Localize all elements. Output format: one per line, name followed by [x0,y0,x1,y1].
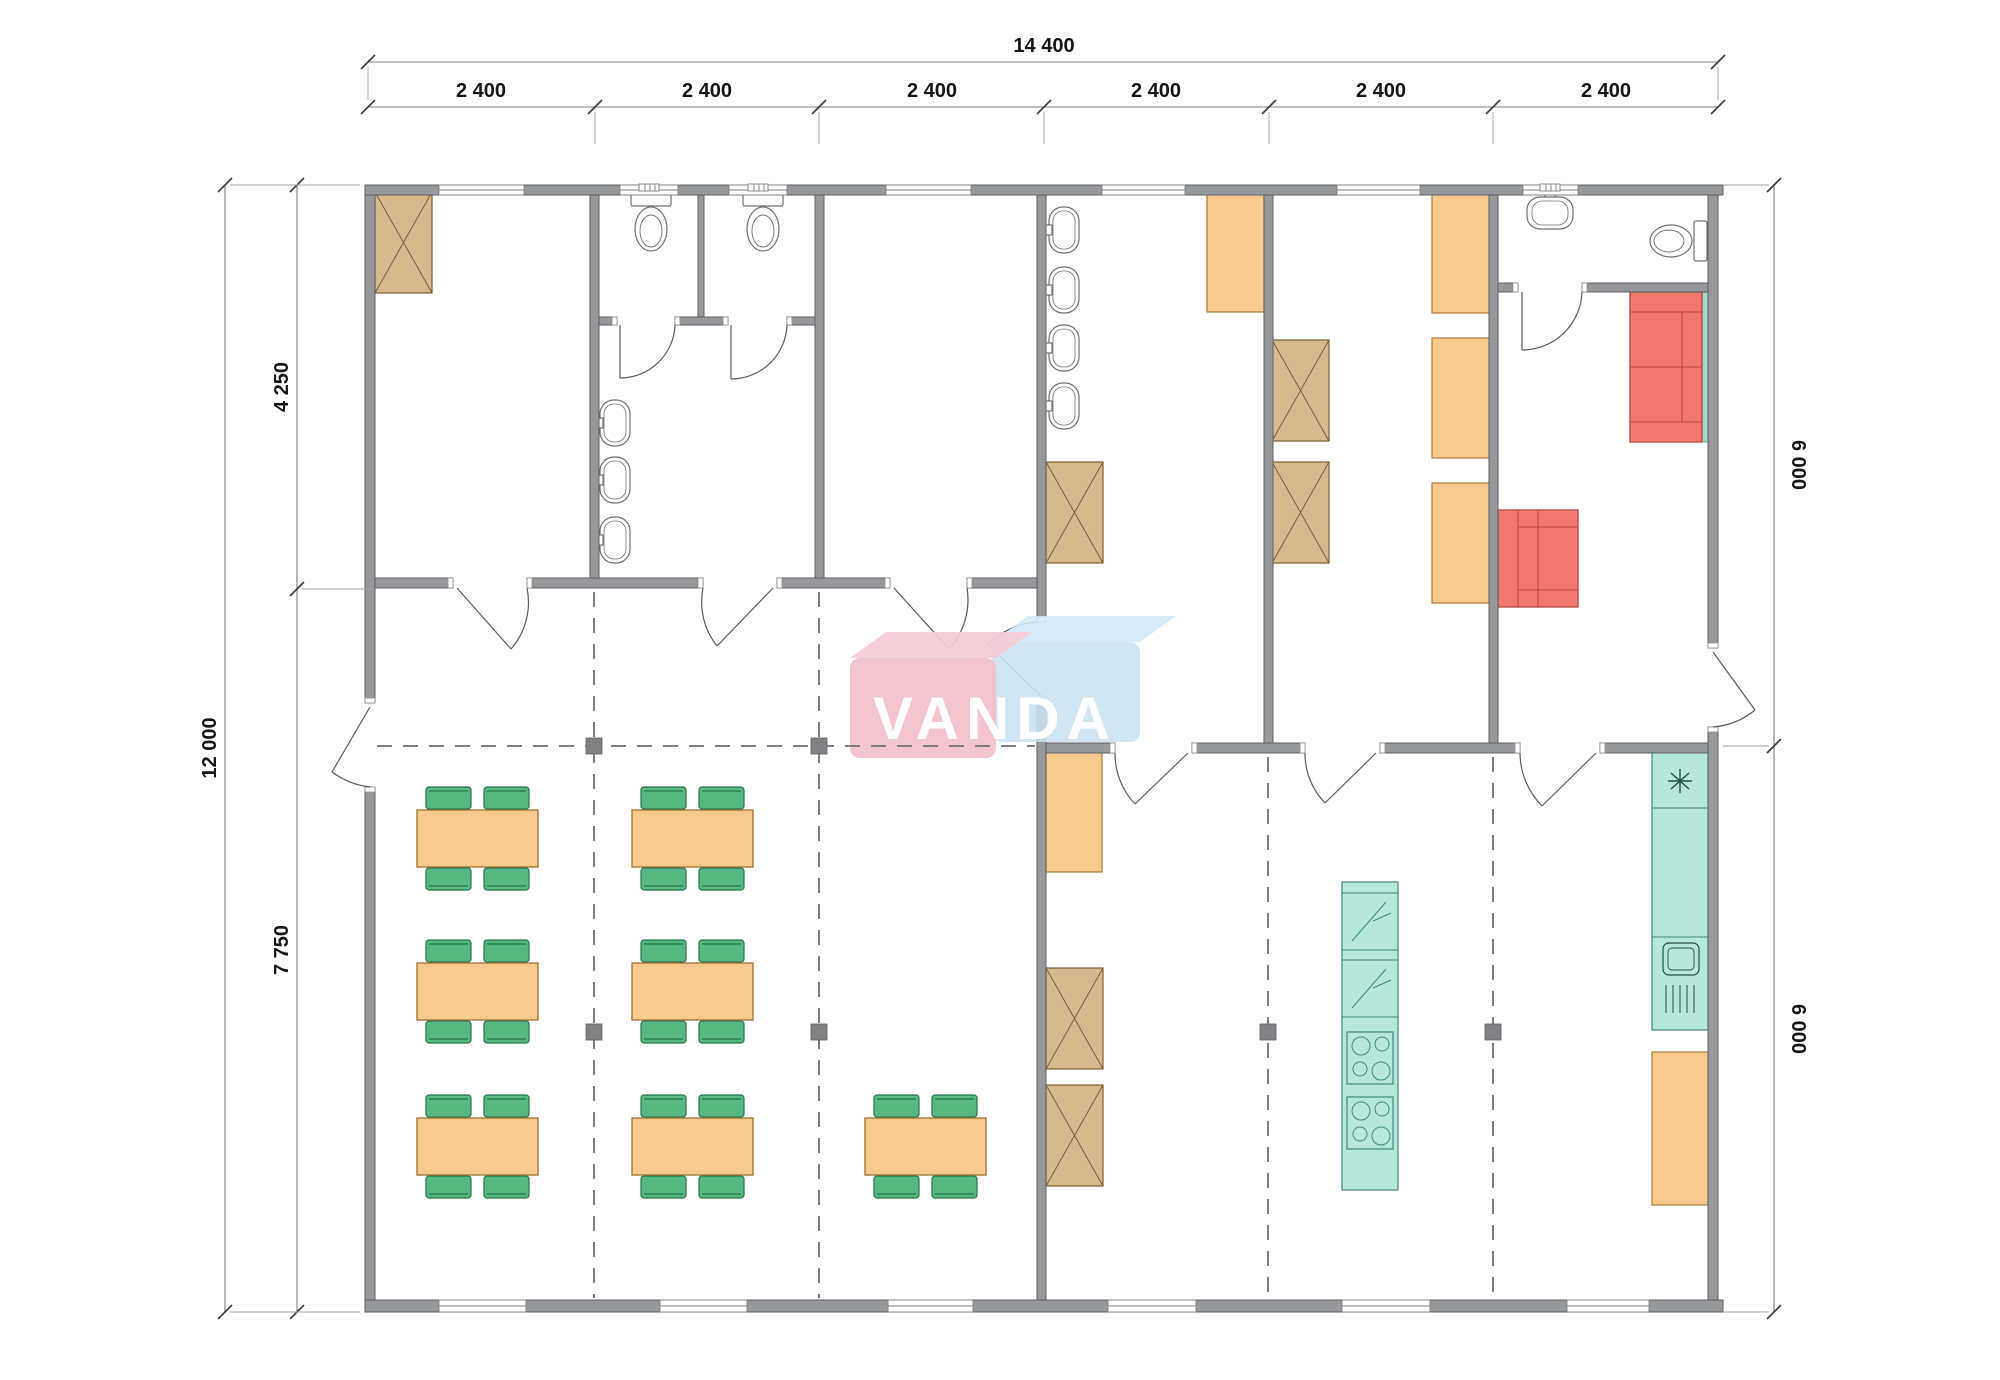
dim-bay: 2 400 [1131,80,1181,102]
bed-icon [1652,1052,1708,1205]
grid-node-icon [586,1024,602,1040]
exterior-wall-left [365,195,375,703]
interior-wall [1489,195,1498,753]
wardrobe-icon [1046,462,1103,563]
dim-left-upper: 4 250 [271,362,293,412]
dim-bay: 2 400 [1356,80,1406,102]
dining-table-icon [865,1095,986,1198]
exterior-door-icon [1713,652,1755,727]
sink-icon [1043,207,1079,253]
dim-total-width: 14 400 [1013,35,1074,57]
grid-node-icon [811,1024,827,1040]
interior-wall [1380,743,1520,753]
bed-icon [1432,483,1490,603]
dining-table-icon [632,940,753,1043]
wardrobe-icon [1272,340,1329,441]
dim-bay: 2 400 [456,80,506,102]
interior-wall [967,578,1037,588]
grid-node-icon [586,738,602,754]
dim-right-upper: 6 000 [1787,440,1809,490]
interior-wall [1037,195,1046,622]
dining-table-icon [632,1095,753,1198]
logo-text: VANDA [873,685,1117,752]
door-icon [1305,753,1376,803]
dim-bay: 2 400 [1581,80,1631,102]
toilet-icon [631,193,671,251]
interior-wall [1037,700,1046,1300]
exterior-door-icon [332,707,370,787]
exterior-wall-right [1708,727,1718,1300]
exterior-wall-left [365,787,375,1300]
dim-total-height: 12 000 [199,717,221,778]
grid-node-icon [811,738,827,754]
sofa-icon [1630,292,1708,442]
dining-table-icon [632,787,753,890]
door-icon [1115,753,1188,804]
interior-wall [815,195,824,578]
bed-icon [1207,193,1264,312]
kitchen-unit [1342,882,1398,1190]
wardrobe-icon [1272,462,1329,563]
interior-wall [1600,743,1708,753]
door-icon [1522,292,1582,350]
floor-plan-page: VANDA 14 400 [0,0,2000,1380]
floor-plan-drawing: VANDA 14 400 [0,0,2000,1380]
sink-icon [1043,325,1079,371]
bed-icon [1046,752,1102,872]
interior-wall [1192,743,1305,753]
interior-wall [1582,283,1708,292]
door-icon [457,588,528,649]
stall-wall [675,317,728,325]
stall-partition [698,195,704,319]
dining-table-icon [417,1095,538,1198]
bed-icon [1432,190,1490,313]
wardrobe-icon [1046,1085,1103,1186]
freezer-icon [1668,769,1692,793]
interior-wall [777,578,890,588]
bed-icon [1432,338,1490,458]
kitchen-counter [1652,752,1708,1030]
door-icon [1520,753,1596,806]
dim-bay: 2 400 [907,80,957,102]
dining-table-icon [417,940,538,1043]
door-icon [620,325,675,378]
dim-right-lower: 6 000 [1787,1004,1809,1054]
wardrobe-icon [375,192,432,293]
interior-wall [527,578,703,588]
dim-left-lower: 7 750 [271,925,293,975]
door-icon [731,325,787,379]
exterior-wall-top [365,185,1723,195]
sink-icon [1043,383,1079,429]
wardrobe-icon [1046,968,1103,1069]
interior-wall [590,195,599,578]
interior-wall [375,578,453,588]
sofa-icon [1492,510,1578,607]
toilet-icon [1650,221,1707,261]
exterior-wall-right [1708,195,1718,648]
exterior-wall-bottom [365,1300,1723,1312]
sink-icon [1043,267,1079,313]
door-icon [702,588,773,646]
grid-node-icon [1260,1024,1276,1040]
interior-wall [1264,195,1273,753]
logo: VANDA [850,616,1176,758]
dim-bay: 2 400 [682,80,732,102]
dining-table-icon [417,787,538,890]
toilet-icon [743,193,783,251]
grid-node-icon [1485,1024,1501,1040]
